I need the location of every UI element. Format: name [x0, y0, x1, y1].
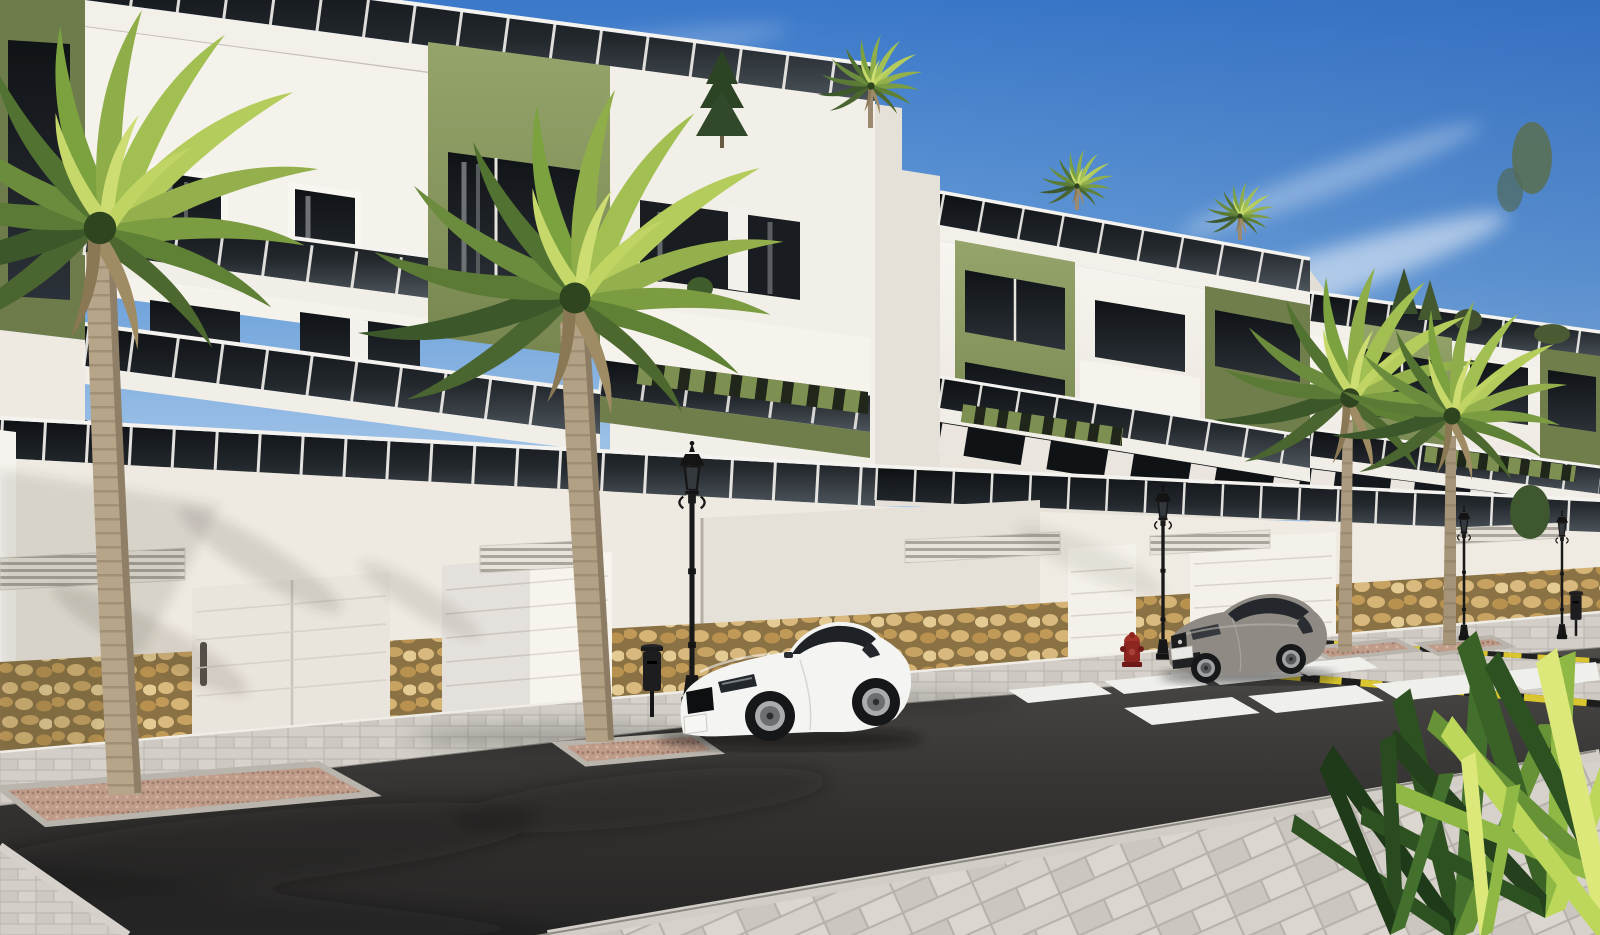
wheel	[1276, 644, 1306, 674]
license-plate	[684, 714, 707, 734]
wheel	[1191, 653, 1221, 683]
render-canvas: Sunny street-level exterior rendering of…	[0, 0, 1600, 935]
side-mirror	[784, 652, 793, 658]
shrub	[1510, 485, 1550, 539]
wheel	[852, 678, 900, 726]
brand-badge	[1178, 640, 1182, 644]
window	[1548, 370, 1596, 432]
wheel	[745, 691, 795, 741]
